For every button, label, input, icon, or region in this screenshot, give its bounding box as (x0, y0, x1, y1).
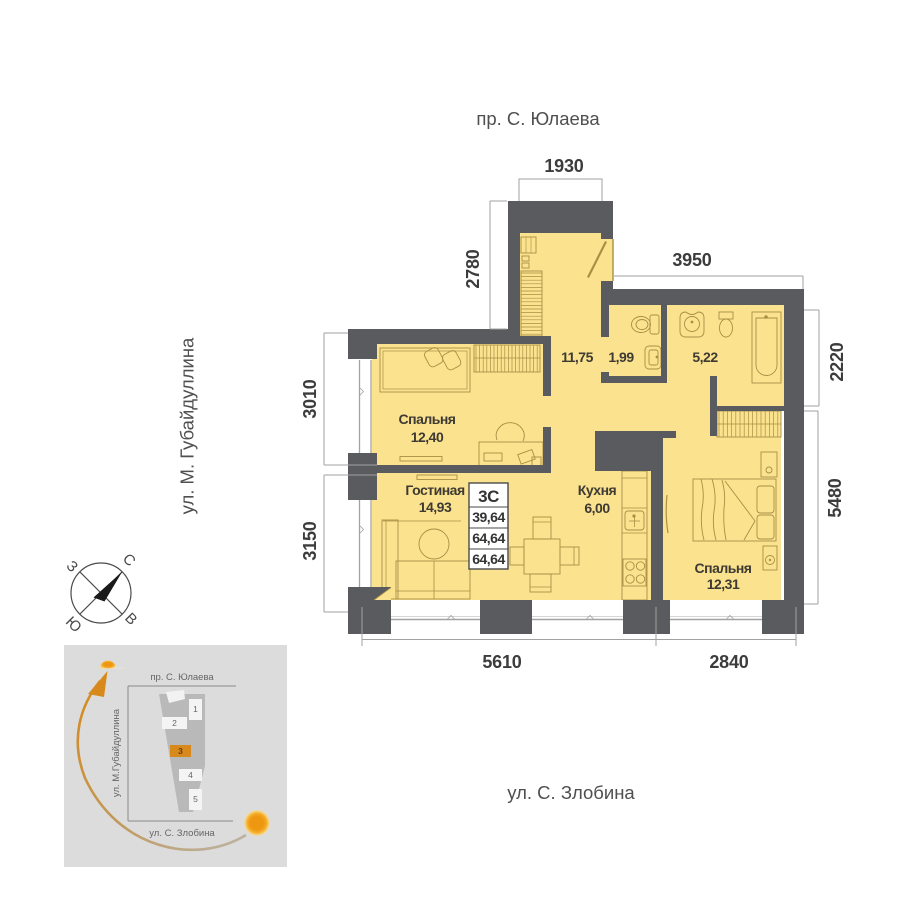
svg-text:12,40: 12,40 (411, 429, 444, 445)
svg-text:3С: 3С (478, 487, 499, 506)
svg-text:Кухня: Кухня (578, 482, 617, 498)
svg-text:пр. С. Юлаева: пр. С. Юлаева (150, 672, 214, 683)
svg-text:2: 2 (172, 718, 177, 728)
svg-text:5,22: 5,22 (692, 349, 718, 365)
svg-text:ул. С. Злобина: ул. С. Злобина (507, 782, 635, 803)
svg-text:5610: 5610 (482, 652, 521, 672)
svg-text:5480: 5480 (825, 478, 845, 517)
svg-text:1930: 1930 (544, 156, 583, 176)
svg-text:Гостиная: Гостиная (405, 482, 465, 498)
svg-text:2220: 2220 (827, 342, 847, 381)
svg-text:14,93: 14,93 (419, 499, 452, 515)
svg-text:12,31: 12,31 (707, 576, 740, 592)
svg-text:39,64: 39,64 (472, 509, 505, 525)
svg-text:ул. М. Губайдуллина: ул. М. Губайдуллина (177, 337, 198, 514)
svg-text:3150: 3150 (300, 521, 320, 560)
svg-text:2780: 2780 (463, 249, 483, 288)
svg-text:ул. М.Губайдуллина: ул. М.Губайдуллина (111, 708, 122, 797)
svg-text:2840: 2840 (709, 652, 748, 672)
svg-text:ул. С. Злобина: ул. С. Злобина (149, 828, 215, 839)
svg-text:1: 1 (193, 704, 198, 714)
svg-text:3010: 3010 (300, 379, 320, 418)
svg-text:1,99: 1,99 (608, 349, 634, 365)
svg-text:11,75: 11,75 (561, 349, 593, 365)
svg-text:3: 3 (178, 746, 183, 756)
svg-text:5: 5 (193, 794, 198, 804)
svg-text:64,64: 64,64 (472, 530, 505, 546)
svg-text:Спальня: Спальня (399, 411, 456, 427)
svg-text:пр. С. Юлаева: пр. С. Юлаева (476, 108, 600, 129)
svg-text:64,64: 64,64 (472, 551, 505, 567)
svg-text:3950: 3950 (672, 250, 711, 270)
svg-text:Спальня: Спальня (695, 560, 752, 576)
svg-text:4: 4 (188, 770, 193, 780)
svg-text:6,00: 6,00 (584, 500, 610, 516)
